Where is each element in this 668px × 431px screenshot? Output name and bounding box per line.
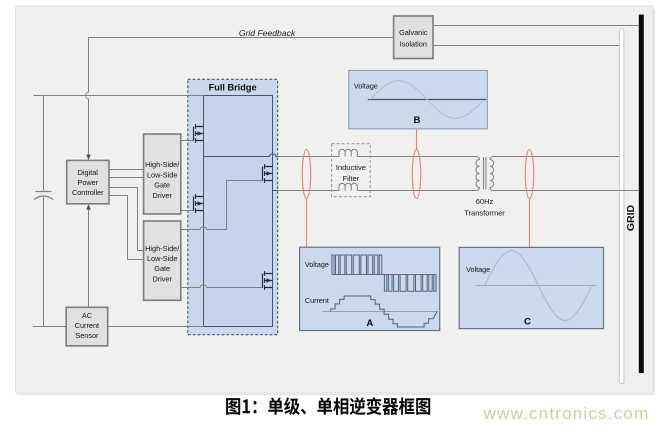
svg-text:Voltage: Voltage <box>466 265 490 274</box>
svg-text:Low-Side: Low-Side <box>147 254 177 263</box>
svg-text:www.cntronics.com: www.cntronics.com <box>483 404 650 423</box>
svg-text:Transformer: Transformer <box>464 209 505 218</box>
svg-text:Inductive: Inductive <box>336 163 366 172</box>
svg-text:Controller: Controller <box>72 188 104 197</box>
svg-text:Driver: Driver <box>152 274 172 283</box>
svg-text:Voltage: Voltage <box>354 82 378 91</box>
svg-text:Gate: Gate <box>154 264 170 273</box>
svg-text:High-Side/: High-Side/ <box>145 244 180 253</box>
svg-text:High-Side/: High-Side/ <box>145 160 180 169</box>
svg-text:60Hz: 60Hz <box>476 197 494 206</box>
svg-text:A: A <box>366 318 373 329</box>
svg-text:Galvanic: Galvanic <box>399 28 428 37</box>
svg-text:Grid Feedback: Grid Feedback <box>239 28 296 38</box>
svg-text:C: C <box>524 316 531 327</box>
svg-text:Digital: Digital <box>78 168 99 177</box>
svg-text:Current: Current <box>75 321 99 330</box>
svg-text:AC: AC <box>82 311 92 320</box>
svg-text:Low-Side: Low-Side <box>147 170 177 179</box>
svg-text:Full Bridge: Full Bridge <box>209 83 257 93</box>
svg-text:B: B <box>414 115 421 126</box>
svg-text:Gate: Gate <box>154 181 170 190</box>
svg-text:Current: Current <box>305 296 329 305</box>
svg-text:Power: Power <box>77 178 98 187</box>
svg-text:Voltage: Voltage <box>305 260 329 269</box>
svg-text:Driver: Driver <box>152 191 172 200</box>
svg-text:Filter: Filter <box>343 174 360 183</box>
svg-text:Isolation: Isolation <box>400 39 427 48</box>
svg-text:Sensor: Sensor <box>75 331 99 340</box>
svg-text:GRID: GRID <box>625 204 637 231</box>
